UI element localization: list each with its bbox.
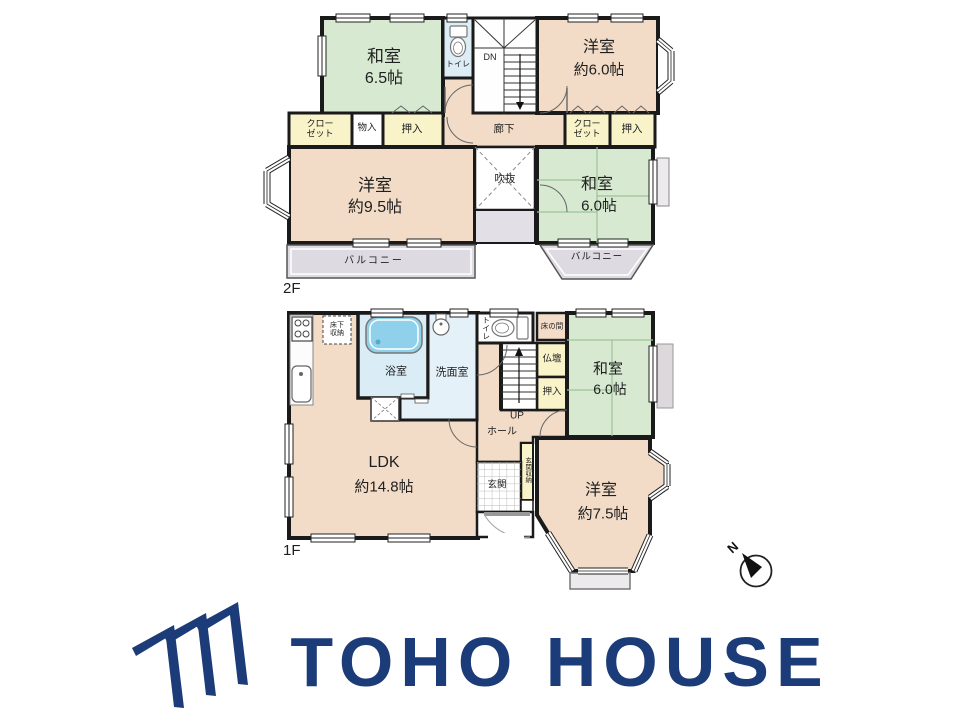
closet-left-label: クローゼット (306, 119, 333, 140)
yoshitsu60-size: 約6.0帖 (574, 61, 625, 78)
monoire-label: 物入 (357, 124, 376, 135)
ldk-size: 約14.8帖 (354, 478, 413, 495)
yoshitsu95-name: 洋室 (358, 176, 392, 196)
toilet-2f-label: トイレ (446, 59, 470, 68)
roof-section (475, 210, 535, 243)
logo-mark (132, 602, 248, 708)
genkan-storage-label: 玄関収納 (523, 457, 530, 483)
yoshitsu75-name: 洋室 (585, 482, 617, 500)
bay-window-left-2f (267, 158, 289, 217)
bay-window-right-2f (658, 40, 671, 92)
floor1-label: 1F (283, 542, 301, 559)
yoshitsu75-size: 約7.5帖 (578, 505, 629, 522)
washitsu65-size: 6.5帖 (365, 70, 403, 88)
kitchen-counter (290, 315, 313, 405)
butsudan-label: 仏壇 (542, 355, 561, 366)
stairs-down-label: DN (484, 52, 497, 62)
floorplan-page: 和室 6.5帖 トイレ DN 洋室 約6.0帖 クローゼット 物入 押入 廊下 … (0, 0, 960, 720)
washitsu60-2f-name: 和室 (581, 176, 613, 194)
hall-label: ホール (487, 426, 517, 438)
oshiire-left-label: 押入 (402, 123, 423, 135)
washitsu60-1f-size: 6.0帖 (593, 381, 626, 397)
bath-label: 浴室 (385, 366, 407, 379)
washitsu65-name: 和室 (367, 47, 401, 67)
stove-icon (292, 317, 312, 341)
compass-icon (741, 553, 772, 587)
closet-right-label: クローゼット (573, 119, 600, 140)
stairs-up-label: UP (510, 410, 524, 422)
yukashita-label: 床下収納 (330, 322, 344, 338)
rouka-label: 廊下 (494, 123, 515, 135)
balcony-right-label: バルコニー (571, 253, 623, 264)
toilet-1f-label: トイレ (481, 316, 490, 340)
logo-wordmark: TOHO HOUSE (280, 622, 840, 702)
floorplan-graphics (0, 0, 960, 720)
oshiire-1f-label: 押入 (542, 388, 561, 399)
floor2-label: 2F (283, 280, 301, 297)
kitchen-sink-icon (292, 366, 311, 402)
oshiire-right-label: 押入 (622, 123, 643, 135)
tokonoma-label: 床の間 (541, 323, 564, 332)
ldk-name: LDK (368, 454, 399, 472)
genkan-label: 玄関 (487, 481, 506, 492)
floor1-plan (285, 309, 673, 589)
yoshitsu95-size: 約9.5帖 (348, 199, 402, 217)
balcony-left-label: バルコニー (344, 255, 404, 267)
stairs-down-icon (473, 18, 537, 113)
senmen-label: 洗面室 (436, 367, 469, 380)
washitsu60-1f-name: 和室 (593, 360, 623, 377)
fukinuke-label: 吹抜 (495, 173, 516, 185)
washitsu60-2f-size: 6.0帖 (581, 197, 617, 214)
room-washitsu60-2f (537, 147, 653, 243)
bathtub-icon (366, 317, 422, 353)
yoshitsu60-name: 洋室 (583, 39, 615, 57)
toilet-icon-2f (450, 26, 467, 57)
